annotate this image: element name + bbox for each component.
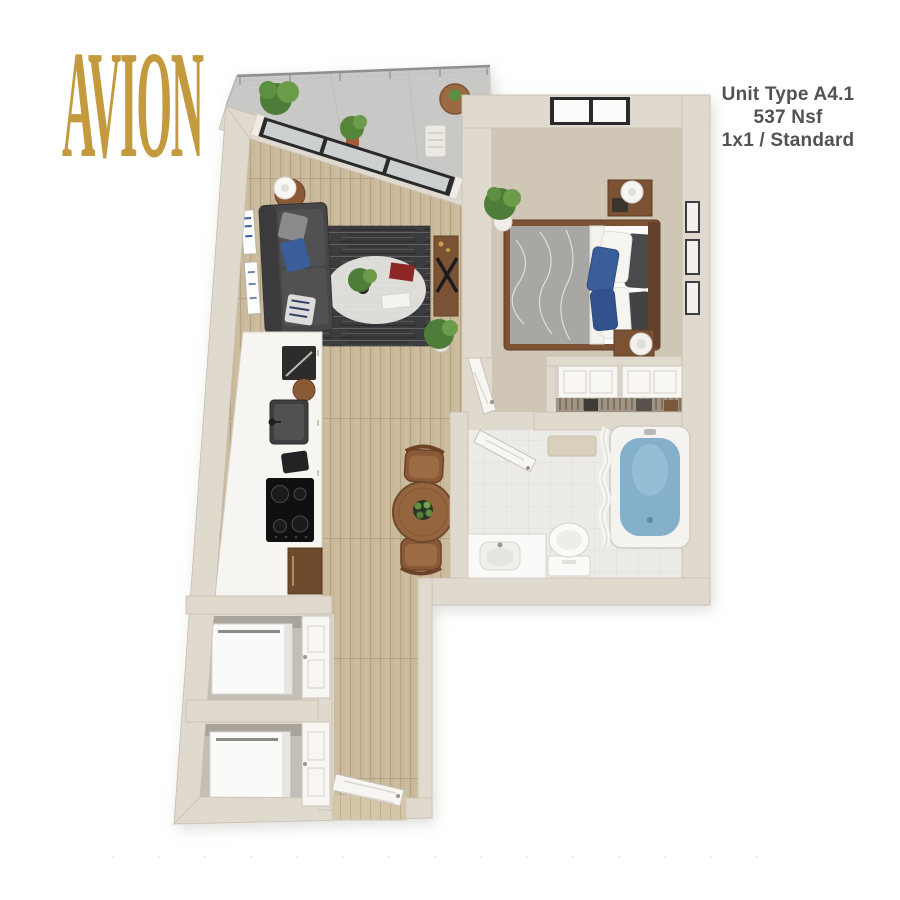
balcony-chair xyxy=(425,125,446,157)
area-rug xyxy=(322,226,430,346)
dryer xyxy=(210,732,290,802)
wall-closet-north xyxy=(546,356,682,366)
espresso-machine xyxy=(282,346,316,380)
wall-bathroom-west xyxy=(450,412,468,580)
nightstand-north xyxy=(608,180,652,216)
wall-laundry-top xyxy=(186,596,332,614)
bedroom-window xyxy=(550,97,630,125)
washer xyxy=(212,624,292,694)
dining-chair-top xyxy=(404,446,444,483)
vanity-sink xyxy=(468,534,546,578)
unit-info: Unit Type A4.1 537 Nsf 1x1 / Standard xyxy=(690,84,886,152)
wall-hallway-east xyxy=(418,578,432,818)
kitchen-sink xyxy=(269,400,309,444)
bath-mat xyxy=(548,436,596,456)
closet-hanging-clothes xyxy=(556,398,682,412)
wall-picture-frames xyxy=(686,202,699,314)
unit-type-label: Unit Type A4.1 xyxy=(690,84,886,107)
closet-door-upper xyxy=(302,616,330,698)
footer-faint-marks xyxy=(112,856,792,858)
dining-chair-bottom xyxy=(401,538,441,574)
floorplan xyxy=(174,66,710,824)
sofa xyxy=(259,202,334,333)
shower-curtain xyxy=(602,428,608,546)
wall-laundry-mid xyxy=(186,700,332,722)
unit-config-label: 1x1 / Standard xyxy=(690,130,886,153)
bathtub xyxy=(610,426,690,548)
nightstand-south xyxy=(614,330,654,356)
wall-bath-block-south xyxy=(432,578,710,605)
toilet xyxy=(548,523,590,576)
cooktop xyxy=(266,478,314,542)
bedroom-closet xyxy=(556,366,682,412)
lower-cabinet xyxy=(288,548,322,594)
small-appliance xyxy=(281,450,310,473)
wall-bedroom-west xyxy=(462,95,492,358)
closet-door-lower xyxy=(302,722,330,806)
floorplan-page: AVION Unit Type A4.1 537 Nsf 1x1 / Stand… xyxy=(0,0,900,900)
wood-stool xyxy=(293,379,315,401)
dining-table xyxy=(393,482,453,542)
unit-area-label: 537 Nsf xyxy=(690,107,886,130)
